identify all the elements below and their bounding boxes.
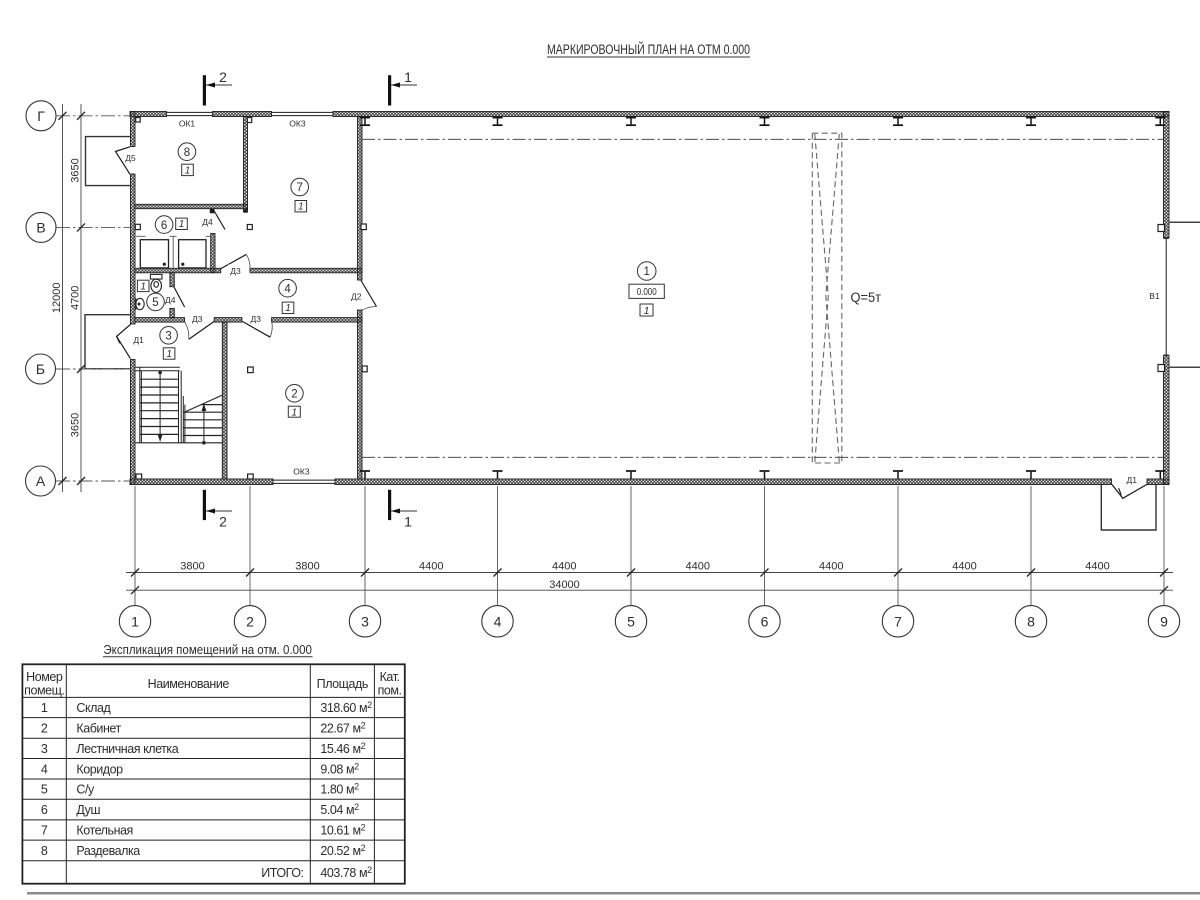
svg-text:3650: 3650 [70,413,82,437]
svg-text:Д3: Д3 [250,314,261,324]
svg-text:В: В [36,219,45,235]
svg-text:ОК1: ОК1 [179,119,196,129]
svg-text:1: 1 [298,202,304,213]
svg-text:1: 1 [140,281,146,292]
svg-text:5: 5 [152,297,158,309]
svg-text:8: 8 [1027,613,1035,629]
svg-text:ИТОГО:: ИТОГО: [261,866,303,880]
svg-text:3: 3 [361,613,369,629]
svg-text:5: 5 [41,783,48,797]
svg-text:Номер: Номер [26,670,63,684]
svg-text:20.52 м2: 20.52 м2 [320,843,365,858]
svg-text:В1: В1 [1149,291,1160,301]
svg-text:34000: 34000 [549,579,580,591]
svg-text:3800: 3800 [295,561,319,573]
svg-text:Б: Б [36,361,45,377]
svg-text:4700: 4700 [70,286,82,310]
svg-text:7: 7 [894,613,902,629]
svg-text:Наименование: Наименование [148,677,230,691]
svg-text:3: 3 [41,742,48,756]
svg-text:2: 2 [219,69,227,85]
svg-text:6: 6 [761,613,769,629]
svg-text:Лестничная клетка: Лестничная клетка [76,742,178,756]
svg-text:1: 1 [404,69,412,85]
svg-text:Душ: Душ [76,803,100,817]
svg-text:4: 4 [41,762,48,776]
svg-text:1: 1 [131,613,139,629]
svg-text:10.61 м2: 10.61 м2 [320,823,365,838]
svg-text:7: 7 [41,824,48,838]
svg-text:22.67 м2: 22.67 м2 [320,720,365,735]
svg-text:Кабинет: Кабинет [76,721,121,735]
svg-text:3650: 3650 [70,158,82,182]
svg-text:5: 5 [627,613,635,629]
svg-text:1: 1 [292,407,298,418]
svg-text:6: 6 [41,803,48,817]
svg-text:Кат.: Кат. [380,670,400,684]
svg-text:А: А [36,473,46,489]
svg-text:1.80 м2: 1.80 м2 [320,782,359,797]
svg-text:4400: 4400 [952,561,976,573]
svg-text:Г: Г [37,108,45,124]
svg-text:7: 7 [296,182,302,194]
svg-text:4400: 4400 [686,561,710,573]
svg-text:Площадь: Площадь [317,677,368,691]
svg-text:1: 1 [185,165,191,176]
svg-text:3800: 3800 [180,561,204,573]
svg-text:4400: 4400 [419,561,443,573]
svg-text:1: 1 [285,303,291,314]
svg-text:1: 1 [404,514,412,530]
svg-text:318.60 м2: 318.60 м2 [320,700,372,715]
svg-text:5.04 м2: 5.04 м2 [320,802,359,817]
svg-text:1: 1 [643,266,649,278]
svg-text:Коридор: Коридор [76,762,123,776]
svg-text:Д2: Д2 [351,291,362,301]
svg-text:ОК3: ОК3 [293,467,310,477]
svg-text:1: 1 [41,701,48,715]
svg-text:1: 1 [644,305,650,317]
svg-text:4400: 4400 [819,561,843,573]
svg-text:1: 1 [179,219,185,230]
svg-text:2: 2 [41,721,48,735]
svg-text:9.08 м2: 9.08 м2 [320,761,359,776]
svg-text:Котельная: Котельная [76,824,132,838]
svg-text:Раздевалка: Раздевалка [76,844,140,858]
svg-text:4400: 4400 [1085,561,1109,573]
svg-text:Склад: Склад [76,701,111,715]
svg-text:6: 6 [161,220,167,232]
svg-text:Д4: Д4 [202,217,213,227]
svg-text:1: 1 [166,349,172,360]
svg-text:пом.: пом. [378,684,402,698]
svg-text:Д3: Д3 [230,266,241,276]
svg-text:12000: 12000 [51,283,63,314]
svg-text:2: 2 [246,613,254,629]
svg-text:4: 4 [494,613,502,629]
svg-text:ОК3: ОК3 [289,119,306,129]
svg-text:Д4: Д4 [165,295,176,305]
svg-text:0.000: 0.000 [637,287,657,298]
svg-text:Д1: Д1 [1127,475,1138,485]
svg-text:Д1: Д1 [133,335,144,345]
svg-text:4400: 4400 [552,561,576,573]
svg-text:С/у: С/у [76,783,95,797]
svg-text:4: 4 [284,283,291,295]
svg-text:9: 9 [1160,613,1168,629]
svg-text:3: 3 [165,331,171,343]
svg-text:МАРКИРОВОЧНЫЙ ПЛАН НА ОТМ 0.00: МАРКИРОВОЧНЫЙ ПЛАН НА ОТМ 0.000 [547,42,750,57]
svg-text:Д3: Д3 [192,314,203,324]
svg-text:15.46 м2: 15.46 м2 [320,741,365,756]
svg-text:Экспликация помещений на отм.: Экспликация помещений на отм. 0.000 [103,642,312,657]
svg-text:помещ.: помещ. [24,684,64,698]
svg-text:403.78 м2: 403.78 м2 [320,865,372,880]
svg-text:8: 8 [41,844,48,858]
svg-text:2: 2 [291,389,297,401]
svg-text:8: 8 [184,147,190,159]
svg-text:2: 2 [219,514,227,530]
svg-text:Д5: Д5 [125,153,136,163]
svg-text:Q=5т: Q=5т [851,290,882,305]
